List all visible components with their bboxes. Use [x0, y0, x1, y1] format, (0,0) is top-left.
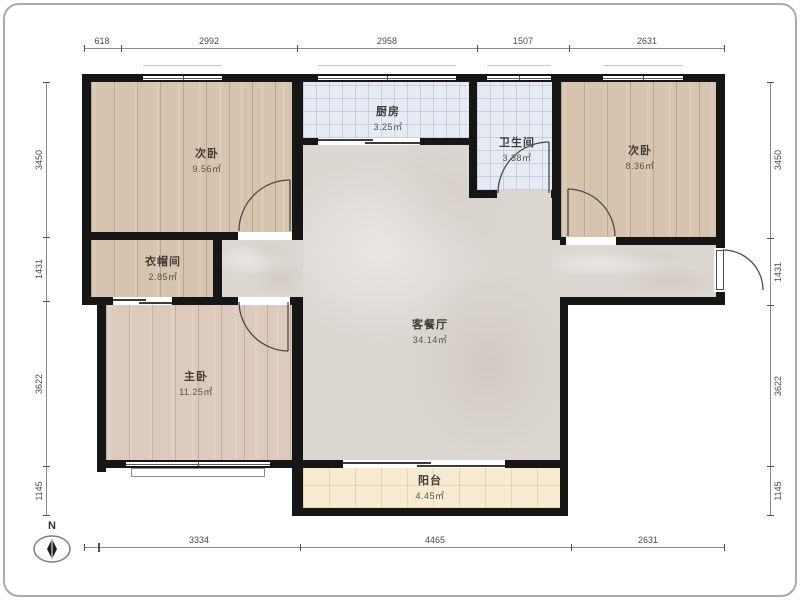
dimension-tick [767, 82, 774, 83]
dim-label: 2631 [637, 36, 657, 46]
dimension-line-bottom [84, 547, 725, 548]
dim-label: 3622 [34, 374, 44, 394]
room-name: 主卧 [179, 368, 213, 384]
dimension-tick [43, 466, 50, 467]
floor-plan-canvas: 次卧 9.56㎡ 厨房 3.25㎡ 卫生间 3.38㎡ 次卧 8.36㎡ 衣帽间… [0, 0, 800, 600]
dim-label: 1145 [34, 481, 44, 500]
room-name: 衣帽间 [145, 253, 181, 269]
dim-label: 3622 [773, 376, 783, 396]
dimension-tick [297, 45, 298, 52]
dim-label: 4465 [425, 535, 445, 545]
dimension-tick [43, 301, 50, 302]
dimension-tick [477, 45, 478, 52]
dim-label: 1507 [513, 36, 533, 46]
room-area: 3.25㎡ [373, 120, 402, 133]
dim-label: 3450 [34, 150, 44, 170]
dimension-tick [121, 45, 122, 52]
dim-label: 1431 [34, 259, 44, 279]
room-area: 11.25㎡ [179, 385, 213, 398]
dimension-tick [43, 82, 50, 83]
dim-label: 2631 [638, 535, 658, 545]
north-label: N [48, 520, 56, 532]
room-name: 次卧 [625, 142, 654, 158]
dim-label: 1431 [773, 262, 783, 282]
dimension-tick [43, 237, 50, 238]
dimension-tick [767, 515, 774, 516]
dimension-line-right [770, 82, 771, 516]
room-area: 8.36㎡ [625, 159, 654, 172]
dimension-line-top [84, 48, 725, 49]
dimension-tick [724, 544, 725, 551]
room-area: 2.85㎡ [145, 270, 181, 283]
room-area: 4.45㎡ [415, 489, 444, 502]
room-label-bedroom-top-right: 次卧 8.36㎡ [625, 142, 654, 172]
dimension-tick [767, 238, 774, 239]
room-label-master-bedroom: 主卧 11.25㎡ [179, 368, 213, 398]
dimension-tick [724, 45, 725, 52]
dim-label: 3450 [773, 150, 783, 170]
room-label-cloakroom: 衣帽间 2.85㎡ [145, 253, 181, 283]
dimension-tick [43, 515, 50, 516]
room-name: 卫生间 [499, 134, 535, 150]
room-label-living-dining: 客餐厅 34.14㎡ [412, 316, 448, 346]
dim-label: 2992 [199, 36, 219, 46]
dim-label: 1145 [773, 481, 783, 500]
room-name: 次卧 [192, 145, 221, 161]
dim-label: 2958 [377, 36, 397, 46]
room-label-bedroom-top-left: 次卧 9.56㎡ [192, 145, 221, 175]
dim-label: 618 [94, 36, 109, 46]
compass-icon [22, 533, 82, 573]
dimension-tick [84, 45, 85, 52]
room-name: 阳台 [415, 472, 444, 488]
room-label-bathroom: 卫生间 3.38㎡ [499, 134, 535, 164]
door-arcs [0, 0, 800, 600]
room-name: 客餐厅 [412, 316, 448, 332]
dimension-tick [571, 544, 572, 551]
dimension-tick [767, 466, 774, 467]
room-area: 3.38㎡ [499, 151, 535, 164]
dimension-tick [98, 543, 100, 552]
room-name: 厨房 [373, 103, 402, 119]
room-label-kitchen: 厨房 3.25㎡ [373, 103, 402, 133]
dimension-tick [767, 305, 774, 306]
room-area: 34.14㎡ [412, 333, 448, 346]
dimension-tick [569, 45, 570, 52]
dim-label: 3334 [189, 535, 209, 545]
dimension-line-left [46, 82, 47, 516]
room-area: 9.56㎡ [192, 162, 221, 175]
dimension-tick [84, 544, 85, 551]
dimension-tick [300, 544, 301, 551]
room-label-balcony: 阳台 4.45㎡ [415, 472, 444, 502]
